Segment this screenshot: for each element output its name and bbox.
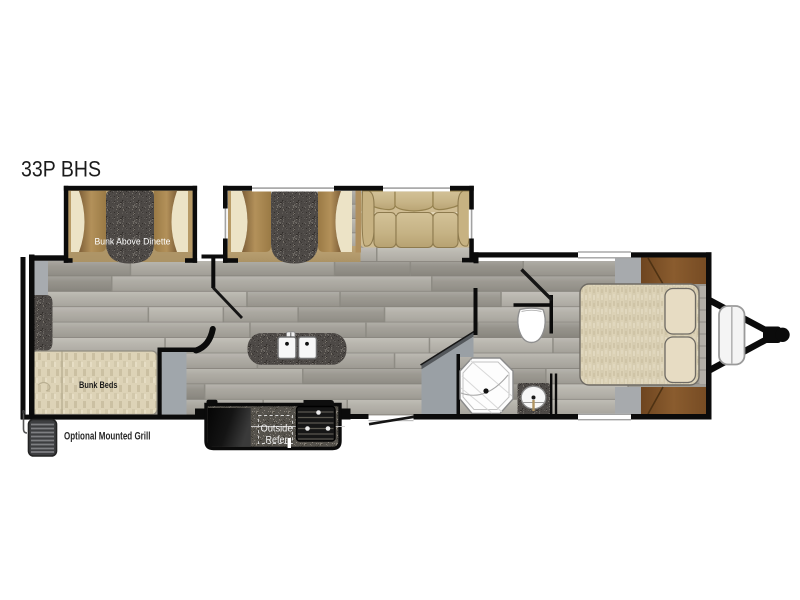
svg-text:Bunk Above Dinette: Bunk Above Dinette bbox=[95, 237, 171, 247]
svg-text:Outside: Outside bbox=[261, 424, 293, 435]
svg-text:Bunk Beds: Bunk Beds bbox=[79, 380, 118, 391]
svg-text:33P BHS: 33P BHS bbox=[21, 157, 101, 182]
svg-text:Refer: Refer bbox=[266, 435, 289, 446]
svg-text:Optional Mounted Grill: Optional Mounted Grill bbox=[64, 431, 151, 443]
